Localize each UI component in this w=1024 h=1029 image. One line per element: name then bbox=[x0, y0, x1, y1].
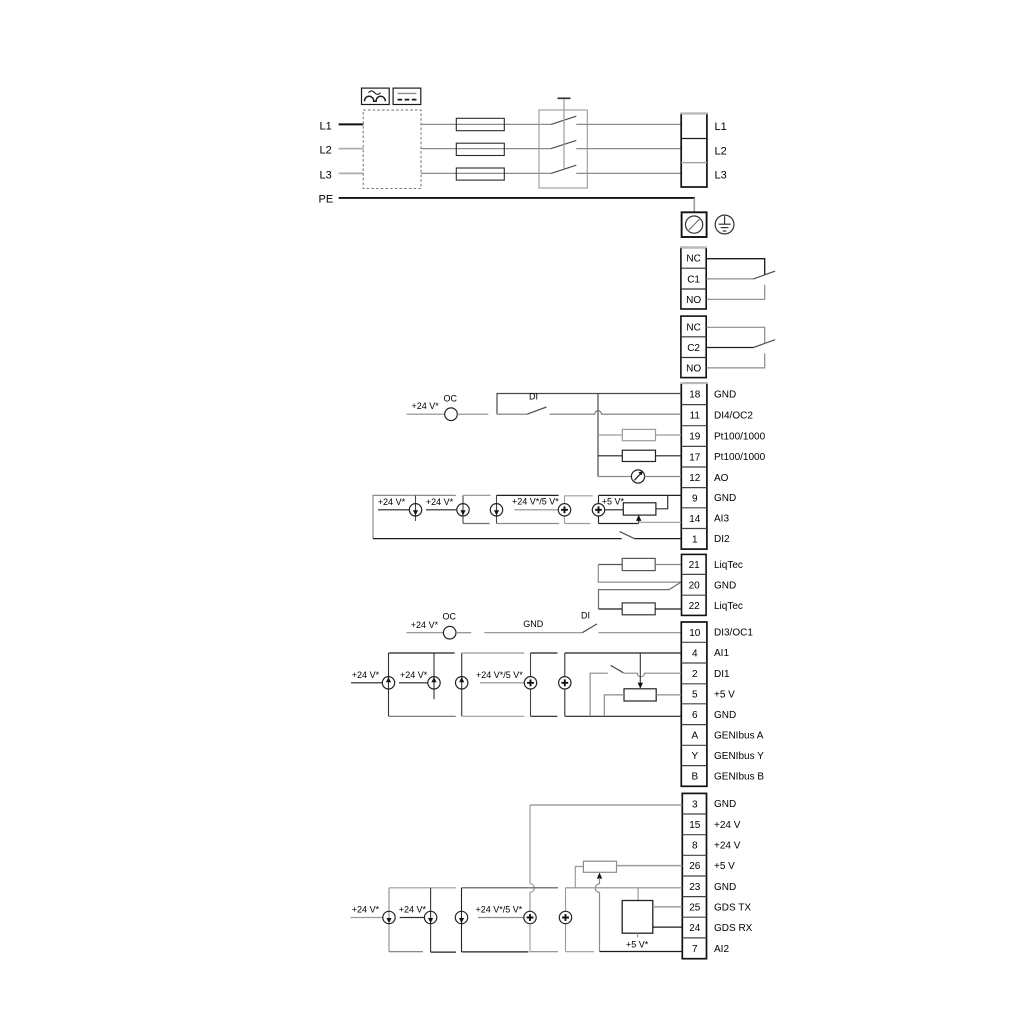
svg-text:GND: GND bbox=[714, 581, 736, 592]
svg-text:+24 V*: +24 V* bbox=[426, 497, 454, 507]
svg-text:6: 6 bbox=[692, 710, 698, 721]
svg-text:+24 V*: +24 V* bbox=[378, 497, 406, 507]
svg-text:19: 19 bbox=[689, 432, 701, 443]
svg-text:Pt100/1000: Pt100/1000 bbox=[714, 452, 766, 463]
svg-text:B: B bbox=[691, 772, 698, 783]
svg-text:7: 7 bbox=[692, 944, 698, 955]
svg-text:LiqTec: LiqTec bbox=[714, 560, 743, 571]
svg-text:PE: PE bbox=[319, 193, 334, 205]
svg-text:Y: Y bbox=[691, 751, 698, 762]
svg-text:10: 10 bbox=[689, 628, 701, 639]
svg-text:AI3: AI3 bbox=[714, 514, 729, 525]
svg-text:+24 V*: +24 V* bbox=[352, 670, 380, 680]
svg-text:NO: NO bbox=[686, 363, 701, 374]
svg-text:+24 V*/5 V*: +24 V*/5 V* bbox=[476, 670, 523, 680]
svg-text:AI1: AI1 bbox=[714, 648, 729, 659]
svg-text:8: 8 bbox=[692, 841, 698, 852]
svg-text:20: 20 bbox=[689, 581, 701, 592]
svg-text:DI3/OC1: DI3/OC1 bbox=[714, 628, 753, 639]
svg-text:11: 11 bbox=[690, 411, 701, 422]
svg-text:+5 V: +5 V bbox=[714, 861, 735, 872]
svg-text:GDS TX: GDS TX bbox=[714, 903, 751, 914]
svg-text:+24 V*: +24 V* bbox=[352, 905, 380, 915]
svg-text:2: 2 bbox=[692, 669, 698, 680]
svg-text:LiqTec: LiqTec bbox=[714, 601, 743, 612]
svg-text:OC: OC bbox=[443, 612, 457, 622]
svg-text:+24 V*/5 V*: +24 V*/5 V* bbox=[512, 496, 559, 506]
svg-text:DI1: DI1 bbox=[714, 669, 730, 680]
svg-text:C1: C1 bbox=[687, 274, 700, 285]
svg-text:GDS RX: GDS RX bbox=[714, 923, 753, 934]
svg-text:24: 24 bbox=[689, 923, 701, 934]
svg-text:NC: NC bbox=[686, 322, 700, 333]
svg-text:+5 V*: +5 V* bbox=[626, 939, 649, 949]
svg-text:DI: DI bbox=[581, 611, 590, 621]
svg-text:+24 V: +24 V bbox=[714, 841, 741, 852]
svg-text:9: 9 bbox=[692, 493, 698, 504]
svg-text:3: 3 bbox=[692, 799, 698, 810]
svg-text:+24 V*/5 V*: +24 V*/5 V* bbox=[476, 905, 523, 915]
svg-text:C2: C2 bbox=[687, 343, 700, 354]
svg-text:Pt100/1000: Pt100/1000 bbox=[714, 432, 766, 443]
svg-text:17: 17 bbox=[689, 452, 701, 463]
svg-text:+24 V: +24 V bbox=[714, 820, 741, 831]
svg-text:+24 V*: +24 V* bbox=[412, 401, 440, 411]
svg-text:GND: GND bbox=[714, 799, 736, 810]
svg-text:GENIbus A: GENIbus A bbox=[714, 731, 764, 742]
svg-text:22: 22 bbox=[689, 601, 701, 612]
svg-text:L3: L3 bbox=[715, 170, 727, 182]
svg-text:GND: GND bbox=[523, 619, 544, 629]
svg-text:DI4/OC2: DI4/OC2 bbox=[714, 411, 753, 422]
svg-text:1: 1 bbox=[692, 534, 698, 545]
svg-text:12: 12 bbox=[689, 473, 701, 484]
svg-text:NC: NC bbox=[686, 254, 700, 265]
svg-text:NO: NO bbox=[686, 295, 701, 306]
svg-text:GND: GND bbox=[714, 389, 736, 400]
svg-text:26: 26 bbox=[689, 861, 701, 872]
svg-text:18: 18 bbox=[689, 390, 701, 401]
svg-text:L2: L2 bbox=[715, 145, 727, 157]
svg-text:GND: GND bbox=[714, 882, 736, 893]
svg-text:14: 14 bbox=[689, 514, 701, 525]
svg-text:OC: OC bbox=[444, 394, 458, 404]
svg-text:AI2: AI2 bbox=[714, 944, 729, 955]
svg-text:GENIbus Y: GENIbus Y bbox=[714, 751, 764, 762]
svg-text:AO: AO bbox=[714, 473, 729, 484]
svg-text:5: 5 bbox=[692, 689, 698, 700]
svg-text:L1: L1 bbox=[320, 120, 332, 132]
svg-text:+24 V*: +24 V* bbox=[399, 905, 427, 915]
svg-text:DI: DI bbox=[529, 391, 538, 401]
svg-text:A: A bbox=[691, 731, 698, 742]
svg-text:25: 25 bbox=[689, 903, 701, 914]
svg-text:DI2: DI2 bbox=[714, 534, 730, 545]
svg-text:GENIbus B: GENIbus B bbox=[714, 772, 764, 783]
svg-text:+24 V*: +24 V* bbox=[400, 670, 428, 680]
svg-text:15: 15 bbox=[689, 820, 701, 831]
svg-text:+24 V*: +24 V* bbox=[411, 620, 439, 630]
svg-text:GND: GND bbox=[714, 710, 736, 721]
svg-text:4: 4 bbox=[692, 648, 698, 659]
svg-text:L3: L3 bbox=[320, 169, 332, 181]
svg-text:21: 21 bbox=[689, 560, 701, 571]
svg-text:+5 V*: +5 V* bbox=[602, 496, 625, 506]
svg-text:L1: L1 bbox=[715, 121, 727, 133]
svg-text:+5 V: +5 V bbox=[714, 689, 735, 700]
svg-text:GND: GND bbox=[714, 493, 736, 504]
svg-text:L2: L2 bbox=[320, 145, 332, 157]
svg-text:23: 23 bbox=[689, 882, 701, 893]
